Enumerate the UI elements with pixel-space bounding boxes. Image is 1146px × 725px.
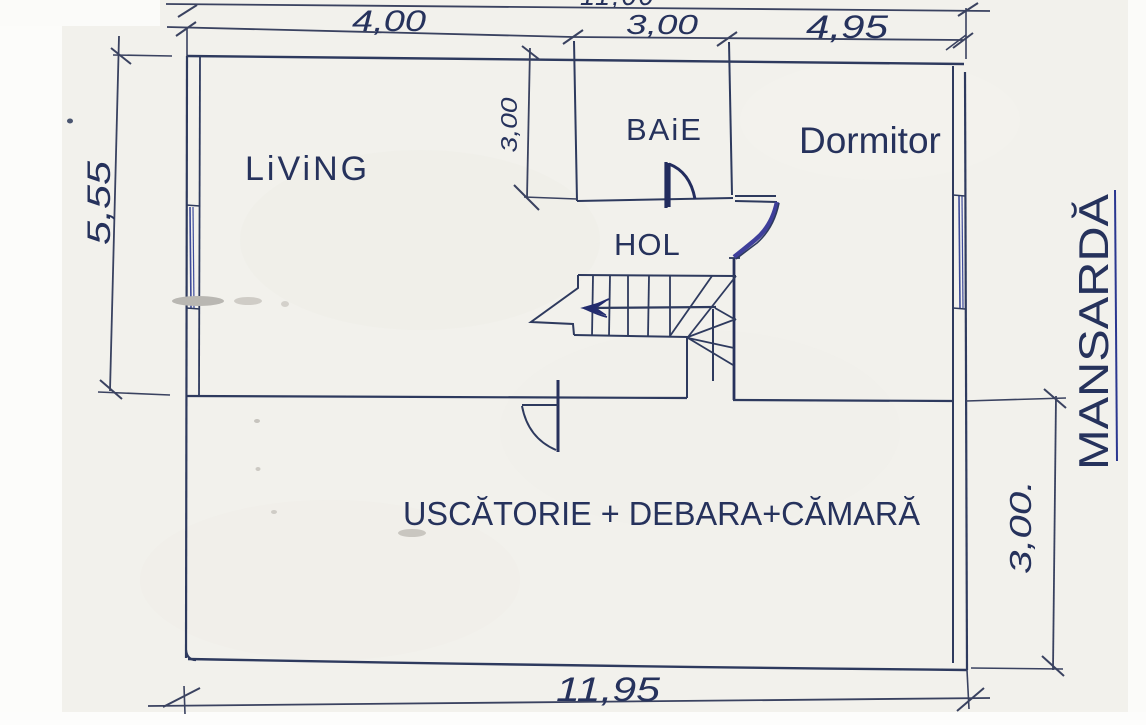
svg-text:3,00: 3,00 (496, 97, 522, 152)
svg-text:Dormitor: Dormitor (799, 120, 941, 161)
svg-text:LiViNG: LiViNG (245, 150, 370, 188)
svg-text:11,95: 11,95 (556, 671, 660, 709)
svg-text:4,00: 4,00 (352, 5, 426, 38)
svg-text:USCĂTORIE + DEBARA+CĂMARĂ: USCĂTORIE + DEBARA+CĂMARĂ (403, 495, 920, 532)
svg-text:4,95: 4,95 (806, 9, 888, 45)
svg-text:HOL: HOL (614, 227, 681, 262)
svg-text:3,00: 3,00 (626, 9, 699, 40)
svg-text:MANSARDĂ: MANSARDĂ (1070, 194, 1117, 470)
svg-text:3,00.: 3,00. (1003, 480, 1038, 574)
svg-text:BAiE: BAiE (626, 112, 703, 147)
svg-text:5,55: 5,55 (81, 161, 117, 245)
